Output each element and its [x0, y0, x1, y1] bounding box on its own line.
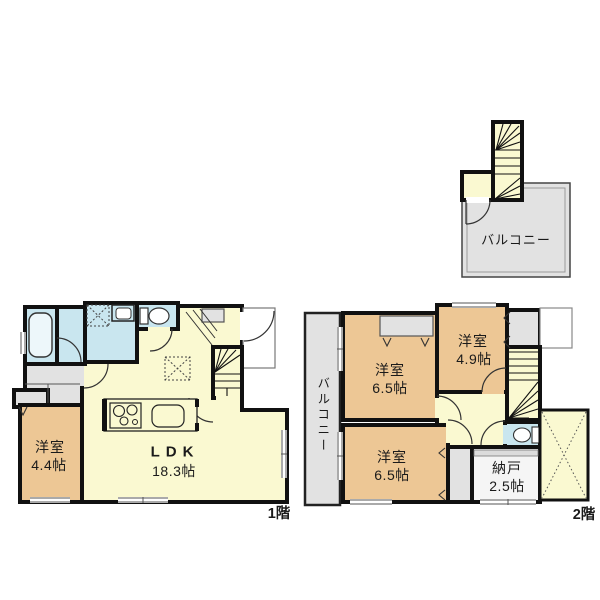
closet-49 [507, 310, 540, 347]
roof-door-opening [466, 197, 489, 203]
floor1-label: 1階 [268, 507, 291, 522]
closet-65-bottom [448, 447, 472, 502]
storage-label: 納戸 [492, 461, 522, 475]
bedroom-44-label: 洋室 [35, 440, 65, 454]
door-opening-65-top [435, 398, 439, 418]
void-area [540, 410, 588, 500]
bedroom-65-bottom-area: 6.5帖 [374, 468, 409, 482]
toilet-door-opening [148, 327, 170, 331]
bedroom-49-area: 4.9帖 [456, 352, 491, 366]
bathtub-icon [29, 313, 52, 357]
bedroom-49-label: 洋室 [458, 334, 488, 348]
kitchen-counter [102, 399, 199, 431]
floorplan-drawing [0, 0, 600, 600]
ldk-area: 18.3帖 [152, 464, 196, 478]
floorplan-canvas: バルコニー 洋室 4.4帖 LDK 18.3帖 1階 バルコニー 洋室 6.5帖… [0, 0, 600, 600]
roof-balcony-plan [462, 122, 570, 277]
entrance-opening [240, 312, 245, 340]
door-opening-65-bottom [446, 421, 450, 443]
storage-area: 2.5帖 [489, 479, 524, 493]
washroom [57, 307, 85, 364]
corridor-door-opening [80, 366, 84, 386]
roof-stair-outline [540, 308, 572, 348]
door-opening-toilet-2f [503, 425, 507, 444]
stairs-2f [507, 347, 540, 420]
closet-65-top [380, 316, 433, 336]
entrance-porch [243, 308, 275, 368]
bedroom-44-area: 4.4帖 [31, 458, 66, 472]
bedroom-65-bottom-label: 洋室 [377, 450, 407, 464]
bedroom-65-top-label: 洋室 [375, 363, 405, 377]
toilet-icon-1f [140, 308, 169, 324]
balcony-2f-label: バルコニー [316, 376, 329, 454]
second-floor-plan [305, 302, 588, 505]
toilet-icon-2f [514, 427, 540, 443]
door-opening-49 [482, 390, 504, 394]
bedroom-65-top-area: 6.5帖 [372, 381, 407, 395]
floor2-label: 2階 [573, 508, 596, 523]
ldk-label: LDK [151, 445, 200, 460]
roof-balcony-label: バルコニー [481, 234, 551, 247]
first-floor-plan [14, 303, 287, 503]
